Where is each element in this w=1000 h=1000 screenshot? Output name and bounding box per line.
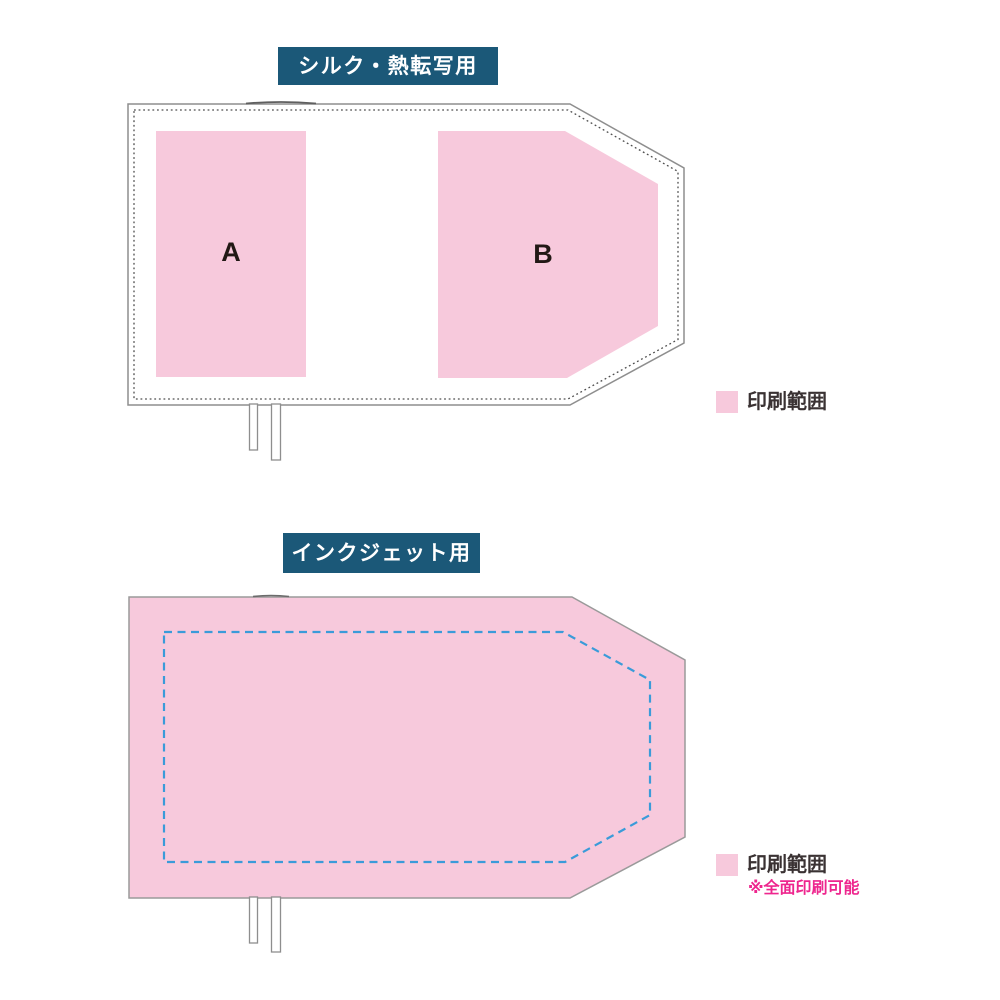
print-area-swatch: [716, 854, 738, 876]
legend-inkjet: 印刷範囲: [716, 854, 827, 876]
legend-label: 印刷範囲: [747, 392, 827, 412]
silk-strap-short: [250, 404, 258, 450]
silk-strap-long: [272, 404, 281, 460]
legend-silk: 印刷範囲: [716, 391, 827, 413]
legend-label: 印刷範囲: [747, 855, 827, 875]
inkjet-figure: [129, 596, 685, 953]
section-title-inkjet: インクジェット用: [283, 533, 480, 573]
inkjet-strap-long: [272, 897, 281, 952]
inkjet-strap-short: [250, 897, 258, 943]
section-title-silk: シルク・熱転写用: [278, 47, 498, 85]
inkjet-pouch-outline: [129, 597, 685, 898]
print-area-a-label: A: [211, 239, 251, 266]
full-surface-print-note: ※全面印刷可能: [748, 881, 860, 897]
print-area-swatch: [716, 391, 738, 413]
silk-figure: [128, 102, 684, 460]
diagram-canvas: [0, 0, 1000, 1000]
print-area-b-label: B: [523, 241, 563, 268]
